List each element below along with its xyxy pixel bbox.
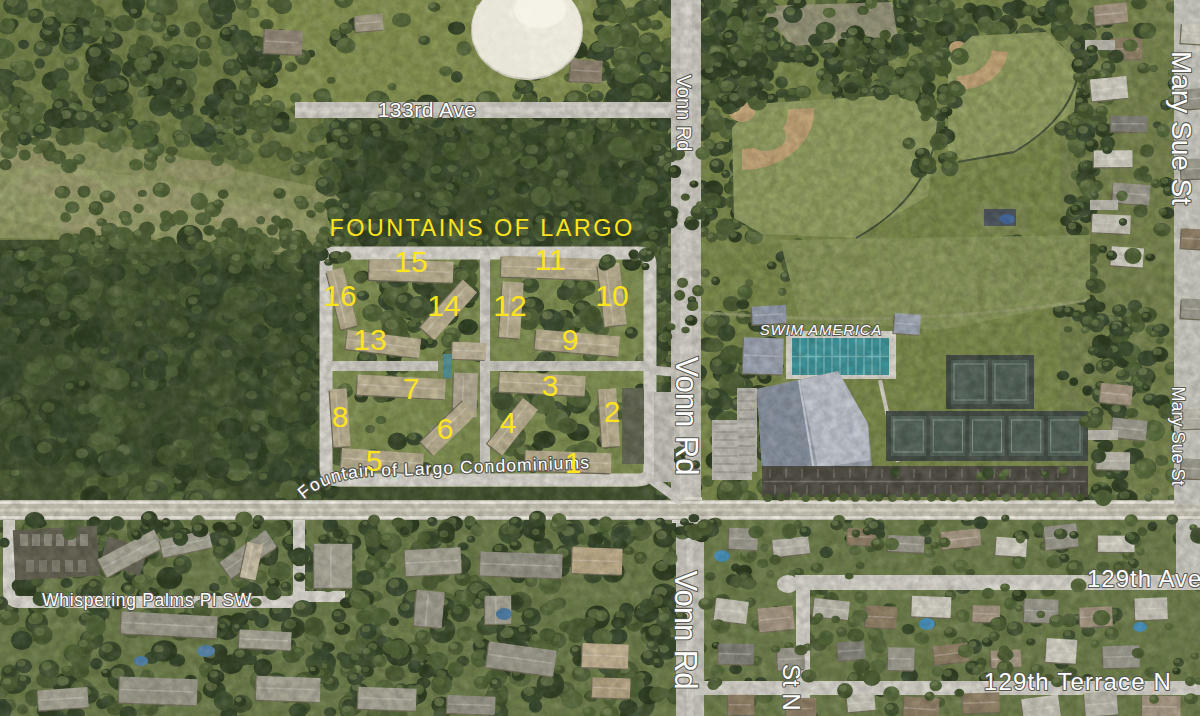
svg-text:Vonn Rd: Vonn Rd — [668, 571, 703, 690]
svg-text:Vonn Rd: Vonn Rd — [669, 357, 704, 476]
svg-text:15: 15 — [394, 245, 427, 278]
svg-text:14: 14 — [427, 289, 460, 322]
svg-text:6: 6 — [437, 412, 454, 445]
svg-text:4: 4 — [500, 406, 517, 439]
svg-text:Whispering Palms Pl SW: Whispering Palms Pl SW — [42, 590, 252, 610]
svg-text:3: 3 — [542, 369, 559, 402]
svg-text:9: 9 — [562, 323, 579, 356]
svg-text:Vonn Rd: Vonn Rd — [673, 75, 695, 152]
svg-text:133rd Ave: 133rd Ave — [378, 98, 477, 121]
svg-text:St N: St N — [778, 664, 805, 711]
svg-text:10: 10 — [595, 279, 628, 312]
svg-text:8: 8 — [332, 400, 349, 433]
svg-text:11: 11 — [534, 243, 565, 276]
svg-text:Mary Sue St: Mary Sue St — [1168, 386, 1188, 485]
svg-text:FOUNTAINS OF LARGO: FOUNTAINS OF LARGO — [329, 215, 634, 241]
svg-text:12: 12 — [493, 289, 526, 322]
svg-text:129th Ave: 129th Ave — [1087, 565, 1200, 592]
svg-text:129th Terrace N: 129th Terrace N — [984, 668, 1172, 695]
svg-text:7: 7 — [403, 372, 420, 405]
svg-text:1: 1 — [565, 446, 582, 479]
svg-text:SWIM AMERICA: SWIM AMERICA — [760, 321, 882, 338]
svg-text:Mary Sue St: Mary Sue St — [1166, 51, 1197, 205]
svg-text:13: 13 — [353, 323, 386, 356]
svg-text:2: 2 — [604, 395, 621, 428]
svg-text:5: 5 — [366, 444, 383, 477]
svg-text:16: 16 — [323, 279, 356, 312]
